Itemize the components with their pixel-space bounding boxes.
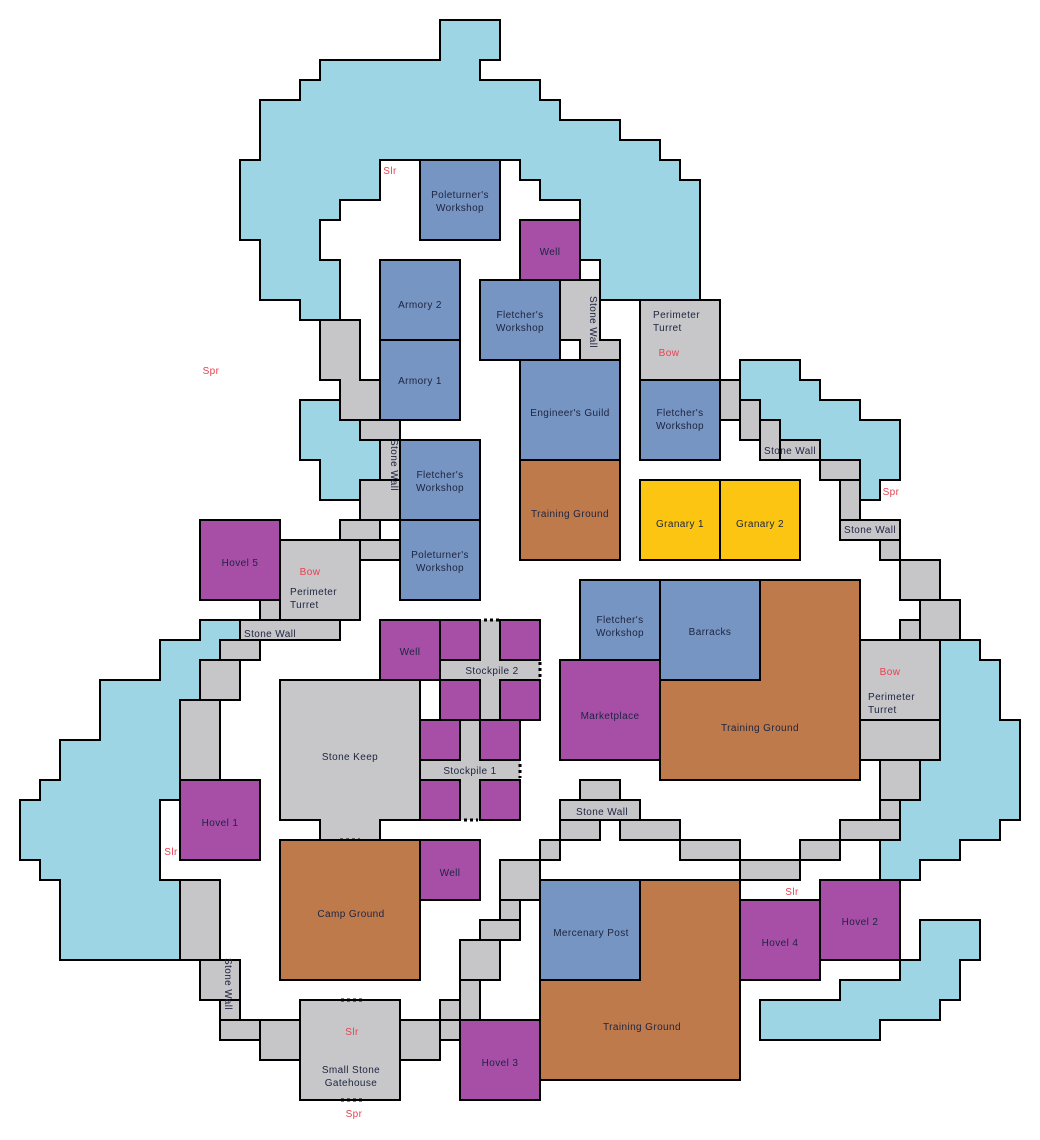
svg-text:Hovel 5: Hovel 5: [222, 558, 259, 569]
svg-text:Hovel 1: Hovel 1: [202, 818, 239, 829]
svg-text:Workshop: Workshop: [596, 628, 644, 639]
svg-text:Engineer's Guild: Engineer's Guild: [530, 408, 609, 419]
svg-text:Gatehouse: Gatehouse: [325, 1078, 378, 1089]
svg-text:Small Stone: Small Stone: [322, 1065, 380, 1076]
svg-text:Fletcher's: Fletcher's: [496, 310, 543, 321]
svg-text:Poleturner's: Poleturner's: [411, 550, 469, 561]
svg-text:Training Ground: Training Ground: [531, 509, 609, 520]
svg-text:Perimeter: Perimeter: [868, 692, 915, 703]
svg-text:Armory 1: Armory 1: [398, 376, 442, 387]
svg-text:Bow: Bow: [880, 667, 901, 678]
svg-text:Fletcher's: Fletcher's: [596, 615, 643, 626]
svg-text:Training Ground: Training Ground: [721, 723, 799, 734]
svg-text:Bow: Bow: [300, 567, 321, 578]
svg-text:Stockpile 2: Stockpile 2: [465, 666, 518, 677]
svg-text:Camp Ground: Camp Ground: [317, 909, 384, 920]
svg-text:Training Ground: Training Ground: [603, 1022, 681, 1033]
svg-text:Spr: Spr: [883, 487, 900, 498]
svg-text:Stone Wall: Stone Wall: [222, 958, 233, 1010]
svg-text:Poleturner's: Poleturner's: [431, 190, 489, 201]
svg-text:Stone Wall: Stone Wall: [244, 629, 296, 640]
svg-text:Slr: Slr: [383, 166, 397, 177]
svg-text:Stone Wall: Stone Wall: [844, 525, 896, 536]
svg-text:Bow: Bow: [659, 348, 680, 359]
svg-text:Spr: Spr: [203, 366, 220, 377]
svg-text:Granary 1: Granary 1: [656, 519, 704, 530]
svg-text:Fletcher's: Fletcher's: [656, 408, 703, 419]
svg-text:Slr: Slr: [345, 1027, 359, 1038]
svg-text:Workshop: Workshop: [416, 563, 464, 574]
svg-text:Hovel 3: Hovel 3: [482, 1058, 519, 1069]
svg-text:Armory 2: Armory 2: [398, 300, 442, 311]
svg-text:Stone Wall: Stone Wall: [576, 807, 628, 818]
svg-text:Stone Wall: Stone Wall: [388, 439, 399, 491]
svg-text:Workshop: Workshop: [416, 483, 464, 494]
svg-text:Hovel 4: Hovel 4: [762, 938, 799, 949]
svg-text:Perimeter: Perimeter: [290, 587, 337, 598]
svg-text:Turret: Turret: [868, 705, 897, 716]
svg-text:Turret: Turret: [290, 600, 319, 611]
svg-text:Fletcher's: Fletcher's: [416, 470, 463, 481]
svg-text:Workshop: Workshop: [496, 323, 544, 334]
svg-text:Well: Well: [400, 647, 421, 658]
svg-text:Slr: Slr: [785, 887, 799, 898]
svg-text:Workshop: Workshop: [436, 203, 484, 214]
svg-text:Granary 2: Granary 2: [736, 519, 784, 530]
svg-text:Turret: Turret: [653, 323, 682, 334]
svg-text:Stone Wall: Stone Wall: [764, 446, 816, 457]
svg-text:Mercenary Post: Mercenary Post: [553, 928, 629, 939]
svg-text:Well: Well: [440, 868, 461, 879]
svg-text:Spr: Spr: [346, 1109, 363, 1120]
svg-text:Well: Well: [540, 247, 561, 258]
svg-text:Stone Wall: Stone Wall: [587, 296, 598, 348]
svg-text:Stockpile 1: Stockpile 1: [443, 766, 496, 777]
svg-text:Perimeter: Perimeter: [653, 310, 700, 321]
svg-text:Slr: Slr: [164, 847, 178, 858]
svg-text:Barracks: Barracks: [689, 627, 732, 638]
svg-text:Marketplace: Marketplace: [581, 711, 640, 722]
svg-text:Hovel 2: Hovel 2: [842, 917, 879, 928]
svg-text:Stone Keep: Stone Keep: [322, 752, 378, 763]
svg-text:Workshop: Workshop: [656, 421, 704, 432]
